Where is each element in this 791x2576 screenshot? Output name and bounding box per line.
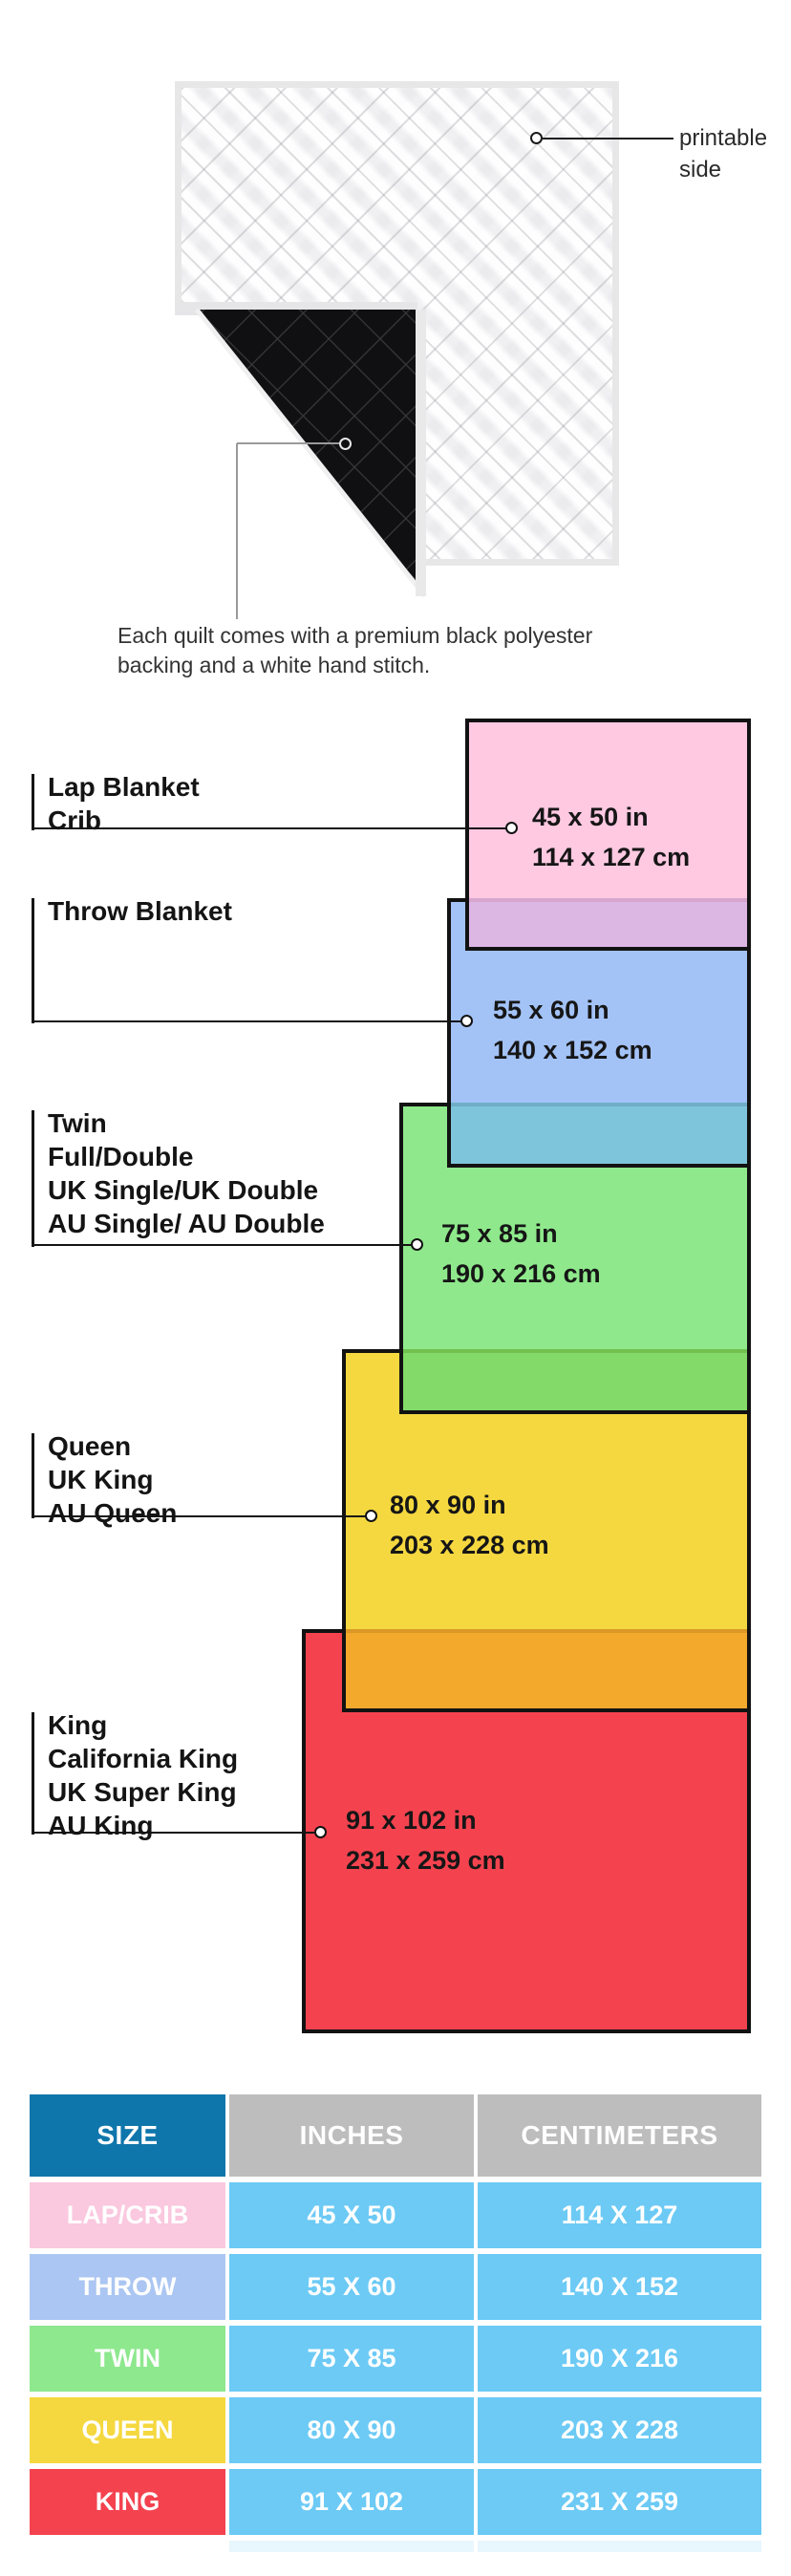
table-cell-inches: 75 X 85 [229, 2326, 474, 2392]
size-label-line: UK Single/UK Double [48, 1173, 325, 1207]
size-dims-king: 91 x 102 in231 x 259 cm [346, 1800, 505, 1880]
size-dims-queen: 80 x 90 in203 x 228 cm [390, 1485, 549, 1565]
table-cell-centimeters: 231 X 259 [478, 2469, 761, 2535]
quilt-size-chart-infographic: printable side Each quilt comes with a p… [0, 0, 791, 2576]
size-dims-inches: 45 x 50 in [532, 797, 690, 837]
table-cell-centimeters: 190 X 216 [478, 2326, 761, 2392]
size-label-line: AU Queen [48, 1496, 177, 1530]
size-callout-dot-king [314, 1826, 327, 1838]
table-row-label: THROW [30, 2254, 225, 2320]
size-dims-inches: 55 x 60 in [493, 990, 652, 1030]
size-label-king: KingCalifornia KingUK Super KingAU King [48, 1708, 238, 1842]
size-dims-inches: 91 x 102 in [346, 1800, 505, 1840]
size-dims-centimeters: 203 x 228 cm [390, 1525, 549, 1565]
size-label-line: California King [48, 1742, 238, 1775]
size-callout-bracket-lap [32, 774, 34, 830]
size-dims-throw: 55 x 60 in140 x 152 cm [493, 990, 652, 1070]
printable-side-line [543, 138, 673, 140]
size-label-line: Throw Blanket [48, 894, 232, 928]
table-cell-centimeters: 203 X 228 [478, 2397, 761, 2463]
size-dims-inches: 75 x 85 in [441, 1213, 601, 1254]
size-label-line: Queen [48, 1429, 177, 1463]
size-callout-line-throw [32, 1020, 466, 1022]
overlap-strip-3 [469, 898, 747, 947]
size-label-throw: Throw Blanket [48, 894, 232, 928]
size-callout-dot-queen [365, 1510, 377, 1522]
size-label-line: Crib [48, 804, 200, 837]
overlap-strip-0 [346, 1629, 747, 1708]
table-header-cell-centimeters: CENTIMETERS [478, 2094, 761, 2177]
size-callout-line-queen [32, 1515, 371, 1517]
size-label-line: UK King [48, 1463, 177, 1496]
table-cell-inches: 91 X 102 [229, 2469, 474, 2535]
size-callout-bracket-twin [32, 1110, 34, 1247]
table-bottom-sheen [229, 2541, 474, 2552]
black-backing-fold [175, 81, 619, 602]
size-label-twin: TwinFull/DoubleUK Single/UK DoubleAU Sin… [48, 1106, 325, 1240]
overlap-strip-2 [451, 1103, 747, 1164]
size-label-line: AU King [48, 1809, 238, 1842]
size-callout-bracket-king [32, 1712, 34, 1835]
size-callout-line-king [32, 1832, 320, 1834]
overlap-strip-1 [403, 1349, 747, 1410]
size-dims-centimeters: 190 x 216 cm [441, 1254, 601, 1294]
size-callout-dot-twin [411, 1238, 423, 1251]
table-cell-centimeters: 114 X 127 [478, 2182, 761, 2248]
size-label-line: UK Super King [48, 1775, 238, 1809]
table-bottom-sheen [478, 2541, 761, 2552]
table-header-cell-size: SIZE [30, 2094, 225, 2177]
fold-vertical-binding [416, 310, 426, 596]
size-callout-line-twin [32, 1244, 417, 1246]
table-row-label: LAP/CRIB [30, 2182, 225, 2248]
size-dims-centimeters: 140 x 152 cm [493, 1030, 652, 1070]
size-callout-bracket-queen [32, 1433, 34, 1518]
size-label-line: Lap Blanket [48, 770, 200, 804]
table-cell-inches: 80 X 90 [229, 2397, 474, 2463]
table-row-label: KING [30, 2469, 225, 2535]
size-label-line: King [48, 1708, 238, 1742]
table-cell-inches: 55 X 60 [229, 2254, 474, 2320]
black-backing-line-v [236, 443, 238, 619]
table-header-cell-inches: INCHES [229, 2094, 474, 2177]
size-dims-twin: 75 x 85 in190 x 216 cm [441, 1213, 601, 1294]
table-row-label: TWIN [30, 2326, 225, 2392]
black-backing-dot [339, 438, 352, 450]
size-callout-dot-throw [460, 1015, 473, 1027]
size-label-line: Full/Double [48, 1140, 325, 1173]
backing-caption: Each quilt comes with a premium black po… [118, 621, 729, 680]
size-dims-inches: 80 x 90 in [390, 1485, 549, 1525]
size-callout-dot-lap [505, 822, 518, 834]
printable-side-dot [530, 132, 543, 144]
printable-side-label: printable side [679, 122, 791, 185]
size-label-line: AU Single/ AU Double [48, 1207, 325, 1240]
size-label-line: Twin [48, 1106, 325, 1140]
size-dims-centimeters: 114 x 127 cm [532, 837, 690, 877]
size-callout-bracket-throw [32, 898, 34, 1023]
size-dims-centimeters: 231 x 259 cm [346, 1840, 505, 1880]
size-callout-line-lap [32, 827, 511, 829]
table-row-label: QUEEN [30, 2397, 225, 2463]
table-cell-inches: 45 X 50 [229, 2182, 474, 2248]
table-cell-centimeters: 140 X 152 [478, 2254, 761, 2320]
black-backing-line-h [237, 442, 340, 444]
size-dims-lap: 45 x 50 in114 x 127 cm [532, 797, 690, 877]
